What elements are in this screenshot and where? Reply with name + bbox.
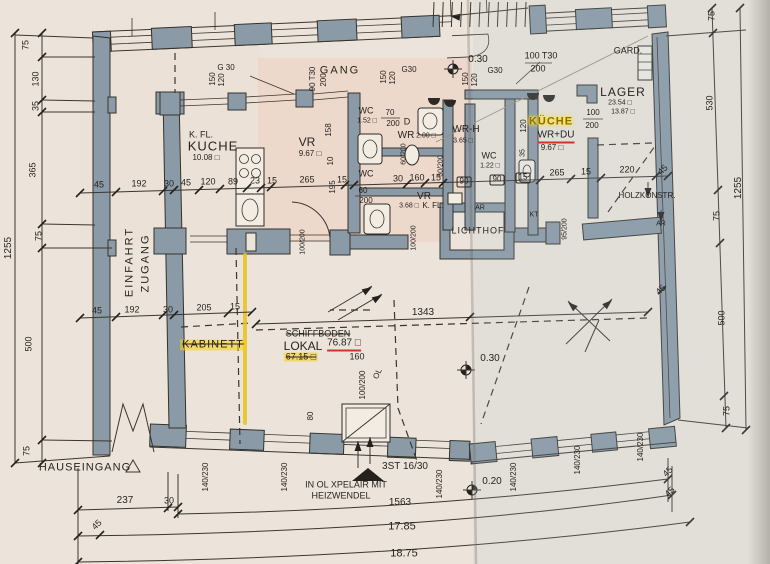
label-67.15: 67.15 □ <box>284 353 318 362</box>
label-90: 90 <box>490 175 505 186</box>
label-1.52: 1.52 □ <box>357 118 377 125</box>
label-lichthof: LICHTHOF <box>452 227 505 236</box>
floor-plan-photo: 7513035365751255500757553075500751255G 3… <box>0 0 770 564</box>
label-1.22: 1.22 □ <box>480 163 500 170</box>
label-130: 130 <box>32 71 41 86</box>
label-30: 30 <box>164 497 174 506</box>
label-365: 365 <box>29 162 38 177</box>
label-1563: 1563 <box>389 498 411 508</box>
label-75: 75 <box>708 11 717 21</box>
label-30: 30 <box>164 180 174 189</box>
label-75: 75 <box>723 406 732 416</box>
label-75: 75 <box>713 211 722 221</box>
label-90: 90 <box>457 177 472 188</box>
label-500: 500 <box>25 336 34 351</box>
label-45: 45 <box>656 163 669 176</box>
label-76.87: 76.87 □ <box>327 339 361 352</box>
label-140-230: 140/230 <box>436 470 444 499</box>
label-120: 120 <box>218 73 226 86</box>
label-265: 265 <box>549 169 564 178</box>
label-1255: 1255 <box>734 177 744 199</box>
label-75: 75 <box>35 231 44 241</box>
label-158: 158 <box>325 123 333 136</box>
label-100-200: 100/200 <box>359 371 367 400</box>
label-10.08: 10.08 □ <box>192 154 219 162</box>
label-150: 150 <box>380 70 388 83</box>
label-gard.: GARD. <box>614 47 643 56</box>
label-ol: OL <box>372 367 384 380</box>
label-10: 10 <box>327 157 335 166</box>
label-9.67: 9.67 □ <box>541 144 564 152</box>
label-hauseingang: HAUSEINGANG <box>39 463 131 474</box>
label-ar: AR <box>475 205 485 212</box>
label-75: 75 <box>22 40 31 50</box>
label-15: 15 <box>581 168 591 177</box>
label-45: 45 <box>90 518 103 531</box>
label-140-230: 140/230 <box>574 446 582 475</box>
label-120: 120 <box>389 71 397 84</box>
label-30: 30 <box>163 306 173 315</box>
label-120: 120 <box>471 73 479 86</box>
label-237: 237 <box>117 496 134 506</box>
label-17.85: 17.85 <box>388 522 416 533</box>
label-45: 45 <box>181 179 191 188</box>
label-140-230: 140/230 <box>510 463 518 492</box>
label-2.00: 2.00 □ <box>416 133 436 140</box>
label-100-t30: 100 T30 <box>525 52 558 61</box>
label-220: 220 <box>619 166 634 175</box>
label-15: 15 <box>337 176 347 185</box>
label-23.54: 23.54 □ <box>608 100 632 107</box>
label-530: 530 <box>706 95 715 110</box>
label-kabinett: KABINETT <box>180 340 246 351</box>
label-15: 15 <box>267 177 277 186</box>
label-205: 205 <box>196 304 211 313</box>
label-192: 192 <box>124 306 139 315</box>
label-150: 150 <box>209 72 217 85</box>
label-200: 200 <box>359 197 372 205</box>
label-g-30: G 30 <box>217 64 234 72</box>
label-zugang: ZUGANG <box>141 233 152 292</box>
label-0.30: 0.30 <box>480 354 499 364</box>
label-in-ol-xpelair-mit: IN OL XPELAIR MIT <box>305 481 387 490</box>
label-192: 192 <box>131 180 146 189</box>
label-15: 15 <box>516 173 531 184</box>
label-3.65: 3.65 □ <box>453 138 473 145</box>
label-100-200: 100/200 <box>411 225 418 250</box>
label-45: 45 <box>92 307 102 316</box>
label-lokal: LOKAL <box>284 340 323 352</box>
label-kuche: KUCHE <box>188 140 239 153</box>
label-kt: KT <box>530 212 539 219</box>
label-89: 89 <box>228 178 238 187</box>
label-35: 35 <box>32 101 41 111</box>
label-60: 60 <box>359 187 368 195</box>
label-k.-fl.: K. FL. <box>422 202 443 210</box>
label-120: 120 <box>200 178 215 187</box>
label-15: 15 <box>431 174 441 183</box>
label-wc: WC <box>359 107 374 116</box>
label-45: 45 <box>663 485 676 498</box>
label-100-200: 100/200 <box>300 229 307 254</box>
label-200: 200 <box>585 122 598 130</box>
label-ar: AR <box>656 221 666 228</box>
label-200: 200 <box>386 120 399 128</box>
label-wr+du: WR+DU <box>538 131 575 144</box>
label-60-200: 60/200 <box>401 143 408 164</box>
label-heizwendel: HEIZWENDEL <box>311 492 370 501</box>
label-3st-16-30: 3ST 16/30 <box>382 462 428 472</box>
label-23: 23 <box>250 177 260 186</box>
label-einfahrt: EINFAHRT <box>125 227 136 297</box>
label-160: 160 <box>349 353 364 362</box>
label-wr: WR <box>398 131 415 141</box>
label-lager: LAGER <box>600 86 646 98</box>
label-500: 500 <box>718 310 727 325</box>
label-140-230: 140/230 <box>202 463 210 492</box>
label-140-230: 140/230 <box>281 463 289 492</box>
label-140-230: 140/230 <box>637 433 645 462</box>
label-d: D <box>404 118 411 127</box>
label-150: 150 <box>462 72 470 85</box>
label-1343: 1343 <box>412 308 434 318</box>
label-0.30: 0.30 <box>468 55 487 65</box>
label-küche: KÜCHE <box>529 117 573 128</box>
label-200: 200 <box>320 73 328 86</box>
label-wc: WC <box>359 170 374 179</box>
label-0.20: 0.20 <box>482 477 501 487</box>
label-g30: G30 <box>401 66 416 74</box>
label-45: 45 <box>94 181 104 190</box>
label-195: 195 <box>329 180 337 193</box>
label-15: 15 <box>230 303 240 312</box>
label-1255: 1255 <box>4 237 14 259</box>
labels-layer: 7513035365751255500757553075500751255G 3… <box>0 0 770 564</box>
label-3.68: 3.68 □ <box>399 203 419 210</box>
label-95-200: 95/200 <box>562 218 569 239</box>
label-90-t30: 90 T30 <box>309 67 317 92</box>
label-18.75: 18.75 <box>390 549 418 560</box>
label-70: 70 <box>386 109 395 117</box>
label-13.87: 13.87 □ <box>611 109 635 116</box>
label-45: 45 <box>661 465 674 478</box>
label-100: 100 <box>586 109 599 117</box>
label-vr: VR <box>299 136 316 148</box>
label-120: 120 <box>520 119 528 132</box>
label-45: 45 <box>654 283 667 296</box>
label-g30: G30 <box>487 67 502 75</box>
label-160: 160 <box>409 174 424 183</box>
label-wr-h: WR-H <box>452 125 479 135</box>
label-265: 265 <box>299 176 314 185</box>
label-30: 30 <box>393 175 403 184</box>
label-holzkonstr.: HOLZKONSTR. <box>619 192 676 200</box>
label-200: 200 <box>530 65 545 74</box>
label-75: 75 <box>23 446 32 456</box>
label-9.67: 9.67 □ <box>299 150 322 158</box>
label-35: 35 <box>520 149 527 157</box>
label-80: 80 <box>307 412 315 421</box>
label-wc: WC <box>482 152 497 161</box>
